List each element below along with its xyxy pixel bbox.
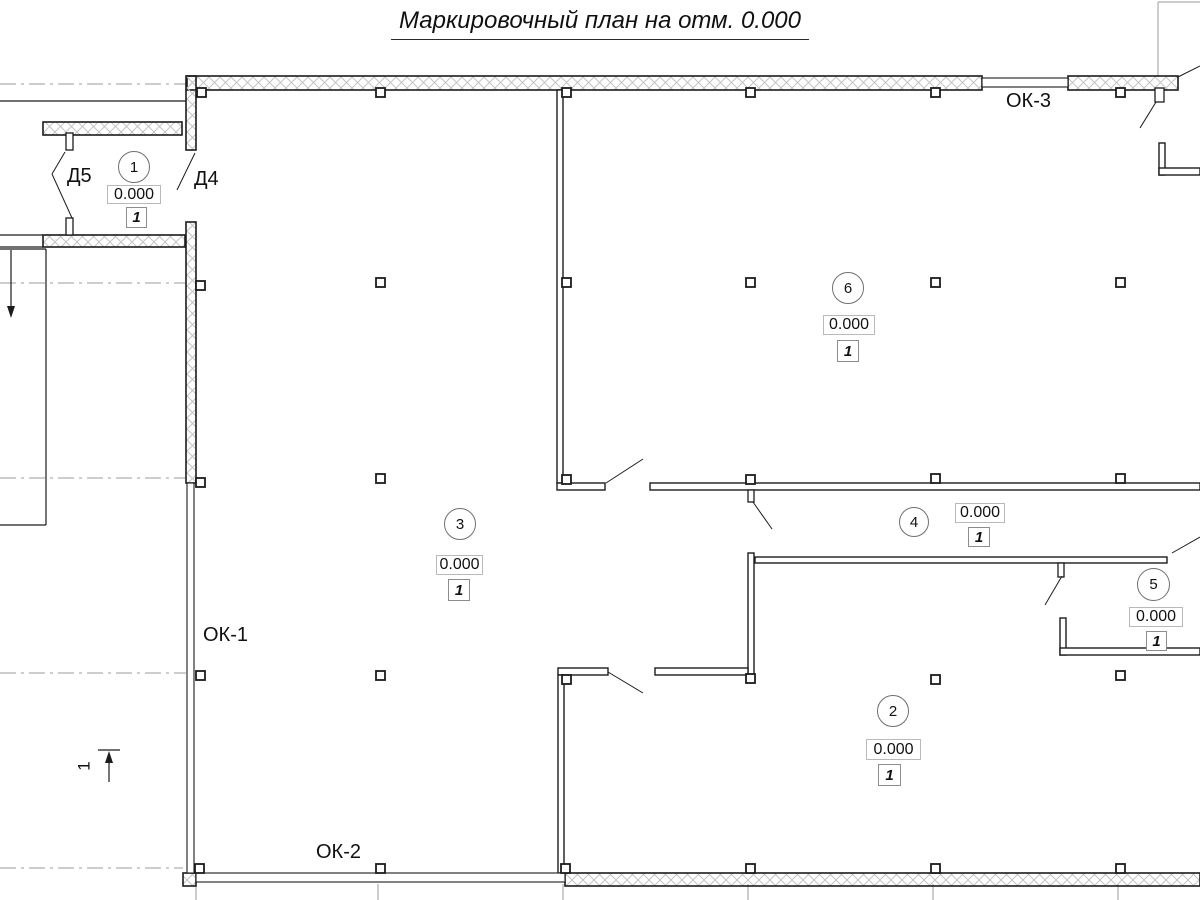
door-label-d5: Д5 (67, 165, 92, 188)
column-marker (1116, 474, 1125, 483)
window-opening (196, 873, 565, 882)
column-marker (746, 864, 755, 873)
room-5-number-bubble: 5 (1137, 568, 1170, 601)
column-marker (746, 88, 755, 97)
wall-hatched (186, 222, 196, 483)
column-marker (376, 864, 385, 873)
column-marker (931, 675, 940, 684)
plan-title-row: Маркировочный план на отм. 0.000 (0, 7, 1200, 40)
door-swing-line (1045, 576, 1062, 605)
room-4-elevation: 0.000 (955, 503, 1005, 523)
door-label-d4: Д4 (194, 168, 219, 191)
wall-hatched (565, 873, 1200, 886)
column-marker (196, 478, 205, 487)
room-3-flag: 1 (448, 579, 470, 601)
column-marker (562, 675, 571, 684)
partition-wall (748, 553, 754, 675)
room-1-elevation: 0.000 (107, 185, 161, 204)
column-marker (561, 864, 570, 873)
column-marker (376, 671, 385, 680)
column-marker (746, 674, 755, 683)
room-1-number-bubble: 1 (118, 151, 150, 183)
column-marker (562, 475, 571, 484)
room-2-flag: 1 (878, 764, 901, 786)
door-swing-line (1140, 102, 1156, 128)
column-marker (746, 278, 755, 287)
column-marker (746, 475, 755, 484)
wall-hatched (187, 76, 982, 90)
column-marker (195, 864, 204, 873)
room-2-number-bubble: 2 (877, 695, 909, 727)
window-label-ok3: ОК-3 (1006, 90, 1051, 113)
room-6-flag: 1 (837, 340, 859, 362)
partition-wall (1159, 168, 1200, 175)
column-marker (1116, 88, 1125, 97)
door-jamb-tick (66, 133, 73, 150)
window-label-ok2: ОК-2 (316, 841, 361, 864)
partition-wall (650, 483, 1200, 490)
wall-hatched (43, 235, 185, 247)
door-swing-line (1178, 66, 1200, 77)
room-4-flag: 1 (968, 527, 990, 547)
column-marker (931, 474, 940, 483)
door-swing-line (52, 152, 65, 174)
door-swing-line (608, 672, 643, 693)
section-mark-number: 1 (75, 761, 95, 770)
room-5-elevation: 0.000 (1129, 607, 1183, 627)
column-marker (196, 671, 205, 680)
column-marker (376, 474, 385, 483)
room-2-elevation: 0.000 (866, 739, 921, 760)
wall-hatched (186, 76, 196, 150)
door-jamb-tick (66, 218, 73, 235)
column-marker (931, 88, 940, 97)
column-marker (1116, 278, 1125, 287)
room-3-number-bubble: 3 (444, 508, 476, 540)
plan-title: Маркировочный план на отм. 0.000 (391, 7, 809, 40)
column-marker (931, 278, 940, 287)
room-3-elevation: 0.000 (436, 555, 483, 575)
column-marker (376, 88, 385, 97)
window-opening (187, 483, 194, 873)
direction-arrow-head (105, 751, 113, 763)
door-swing-line (1172, 537, 1200, 553)
room-5-flag: 1 (1146, 631, 1167, 651)
column-marker (197, 88, 206, 97)
partition-wall (1060, 648, 1200, 655)
room-6-elevation: 0.000 (823, 315, 875, 335)
floor-plan-canvas: Маркировочный план на отм. 0.000 1 0.000… (0, 0, 1200, 900)
room-4-number-bubble: 4 (899, 507, 929, 537)
column-marker (376, 278, 385, 287)
door-swing-line (177, 153, 195, 190)
partition-wall (558, 668, 608, 675)
window-opening (982, 78, 1068, 87)
door-swing-line (606, 459, 643, 483)
door-swing-line (753, 502, 772, 529)
room-1-flag: 1 (126, 207, 147, 228)
door-jamb-tick (748, 490, 754, 502)
column-marker (1116, 671, 1125, 680)
wall-hatched (43, 122, 182, 135)
column-marker (196, 281, 205, 290)
door-jamb-tick (1058, 563, 1064, 577)
column-marker (562, 278, 571, 287)
plan-linework (0, 0, 1200, 900)
partition-wall (558, 675, 564, 873)
column-marker (931, 864, 940, 873)
column-marker (562, 88, 571, 97)
wall-hatched (183, 873, 196, 886)
partition-wall (755, 557, 1167, 563)
window-label-ok1: ОК-1 (203, 624, 248, 647)
column-marker (1116, 864, 1125, 873)
direction-arrow-head (7, 306, 15, 318)
door-jamb-tick (1155, 88, 1164, 102)
room-6-number-bubble: 6 (832, 272, 864, 304)
partition-wall (655, 668, 748, 675)
